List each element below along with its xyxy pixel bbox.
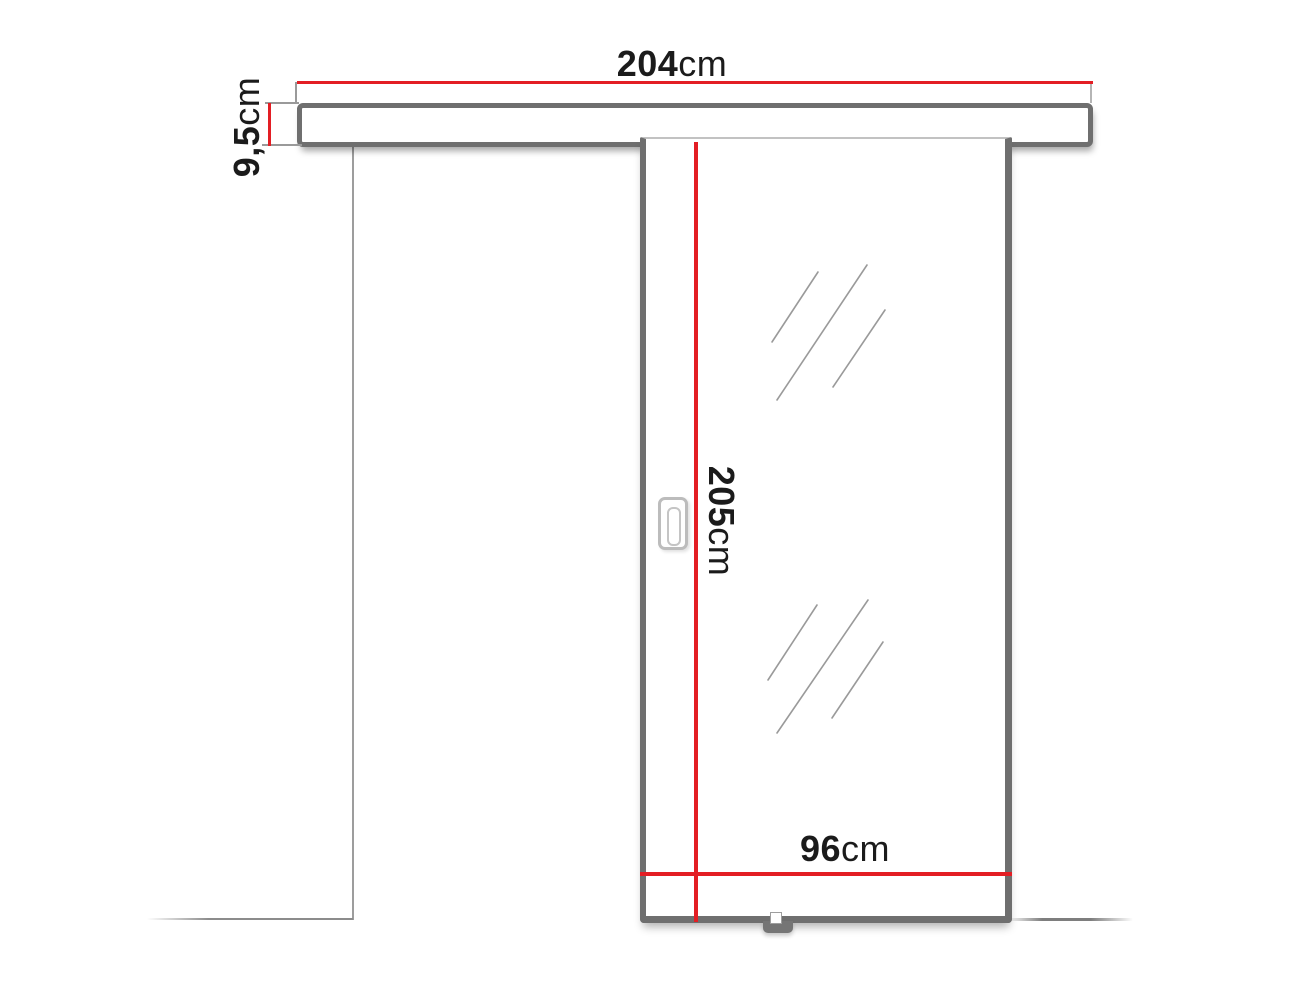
door-width-unit: cm [841, 828, 890, 869]
floor-line-left [147, 918, 353, 920]
rail-width-unit: cm [678, 43, 727, 84]
extension-line-rail-right [1090, 82, 1092, 103]
label-rail-width: 204cm [617, 46, 728, 82]
door-height-unit: cm [701, 527, 742, 576]
extension-line-rail-left [295, 82, 297, 103]
door-width-value: 96 [800, 828, 841, 869]
rail-height-value: 9,5 [226, 126, 267, 178]
door-height-value: 205 [701, 466, 742, 528]
label-door-width: 96cm [800, 831, 890, 867]
label-rail-height: 9,5cm [229, 77, 265, 178]
dimension-line-door-width [640, 872, 1012, 876]
rail-height-unit: cm [226, 77, 267, 126]
rail-width-value: 204 [617, 43, 679, 84]
dimension-line-rail-height [268, 103, 271, 146]
floor-guide-roller [770, 912, 782, 924]
label-door-height: 205cm [703, 466, 739, 577]
wall-line [352, 146, 354, 920]
door-handle-recess [667, 507, 681, 546]
dimension-line-door-height [694, 142, 698, 922]
sliding-door-diagram: 204cm 9,5cm 205cm 96cm [0, 0, 1309, 982]
floor-line-right [1012, 918, 1133, 921]
